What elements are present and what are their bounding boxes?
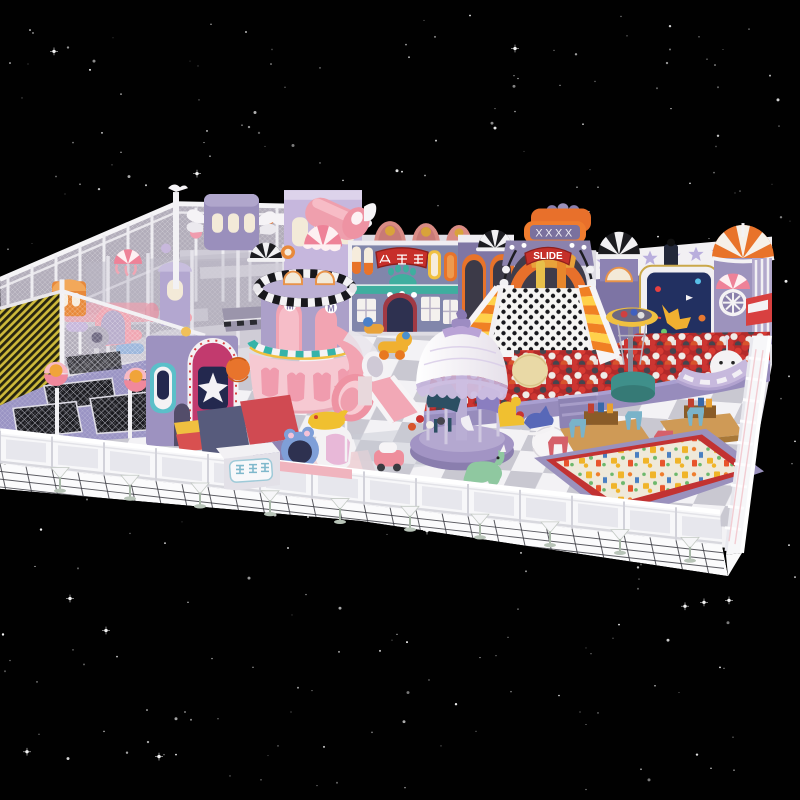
- svg-text:SLIDE: SLIDE: [533, 251, 563, 262]
- svg-text:XXXX: XXXX: [535, 228, 574, 240]
